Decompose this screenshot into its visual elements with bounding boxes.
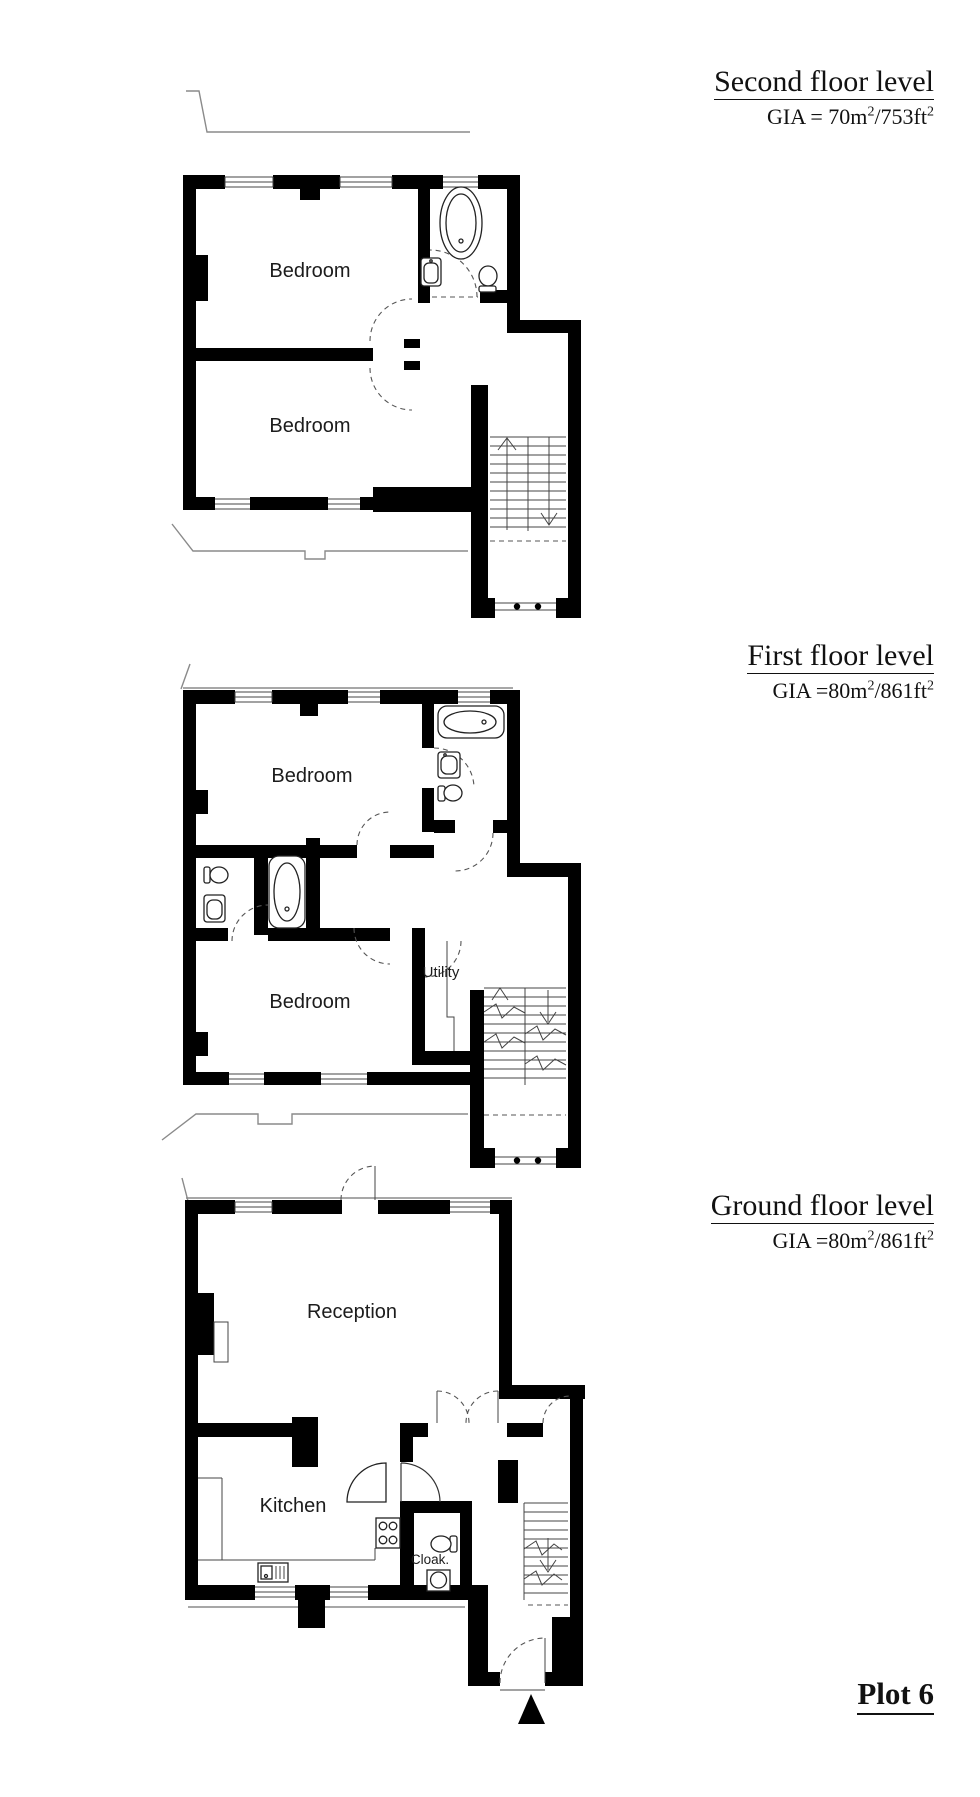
washbasin xyxy=(438,752,460,778)
toilet xyxy=(479,266,497,292)
bathtub xyxy=(269,856,305,928)
room-label-bedroom: Bedroom xyxy=(269,415,350,437)
washbasin xyxy=(204,895,225,922)
page-title: Second floor level xyxy=(714,66,934,100)
fireplace-outline xyxy=(214,1322,228,1362)
walls xyxy=(185,1200,585,1686)
staircase xyxy=(490,437,566,531)
room-label-cloak: Cloak. xyxy=(411,1552,449,1567)
room-label-bedroom: Bedroom xyxy=(269,991,350,1013)
kitchen-swing-door xyxy=(401,1463,440,1502)
washbasin xyxy=(427,1570,450,1591)
room-label-utility: Utility xyxy=(423,964,460,981)
second-floor-plan: Bedroom Bedroom xyxy=(130,60,600,650)
toilet xyxy=(438,785,462,801)
first-floor-gia: GIA =80m2/861ft2 xyxy=(747,678,934,704)
ground-floor-title-block: Ground floor level GIA =80m2/861ft2 xyxy=(711,1190,934,1254)
kitchen-sink xyxy=(258,1563,288,1582)
walls xyxy=(183,690,581,1168)
staircase xyxy=(524,1503,568,1605)
second-floor-gia: GIA = 70m2/753ft2 xyxy=(714,104,934,130)
bathroom-fixtures xyxy=(421,187,497,292)
toilet xyxy=(204,867,228,883)
ground-floor-gia: GIA =80m2/861ft2 xyxy=(711,1228,934,1254)
bathtub xyxy=(440,187,482,259)
entrance-marker-triangle xyxy=(518,1694,545,1724)
windows xyxy=(215,177,556,610)
plot-number-label: Plot 6 xyxy=(857,1676,934,1715)
washbasin xyxy=(421,258,441,286)
kitchen-swing-door xyxy=(347,1463,386,1502)
bathroom-fixtures xyxy=(438,706,504,801)
bathtub xyxy=(438,706,504,738)
first-floor-plan: Bedroom Bedroom Utility xyxy=(130,640,600,1200)
toilet xyxy=(431,1536,457,1552)
room-label-bedroom: Bedroom xyxy=(269,260,350,282)
ground-floor-plan: Reception Kitchen Cloak. xyxy=(130,1165,600,1740)
second-floor-title-block: Second floor level GIA = 70m2/753ft2 xyxy=(714,66,934,130)
first-floor-title-block: First floor level GIA =80m2/861ft2 xyxy=(747,640,934,704)
hob xyxy=(376,1518,400,1548)
room-label-reception: Reception xyxy=(307,1301,397,1323)
utility-boiler-outline xyxy=(447,941,454,1051)
stairs-up-arrow xyxy=(492,988,508,1000)
room-label-kitchen: Kitchen xyxy=(260,1495,327,1517)
entrance-door-swing xyxy=(500,1638,545,1683)
room-label-bedroom: Bedroom xyxy=(271,765,352,787)
floorplan-page: Second floor level GIA = 70m2/753ft2 Fir… xyxy=(0,0,980,1797)
staircase xyxy=(484,988,566,1085)
